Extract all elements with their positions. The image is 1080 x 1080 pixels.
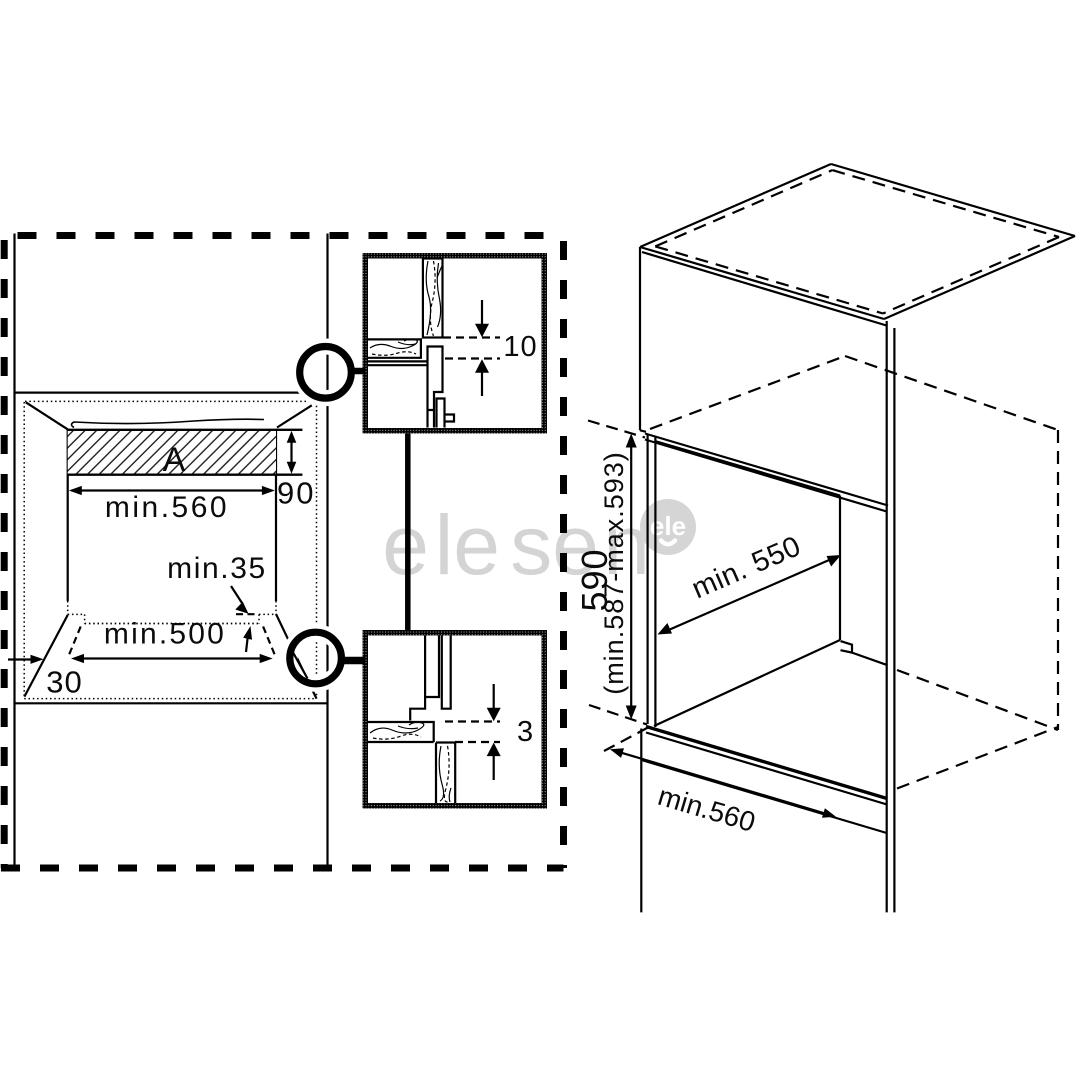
- svg-text:min.500: min.500: [104, 618, 226, 651]
- svg-text:3: 3: [517, 716, 534, 748]
- svg-text:min.560: min.560: [105, 491, 229, 524]
- svg-text:A: A: [163, 441, 187, 479]
- svg-text:10: 10: [503, 331, 537, 363]
- svg-text:(min.587-max.593): (min.587-max.593): [599, 451, 629, 695]
- svg-text:90: 90: [277, 476, 315, 511]
- svg-text:30: 30: [46, 665, 82, 700]
- svg-text:min.35: min.35: [167, 552, 267, 585]
